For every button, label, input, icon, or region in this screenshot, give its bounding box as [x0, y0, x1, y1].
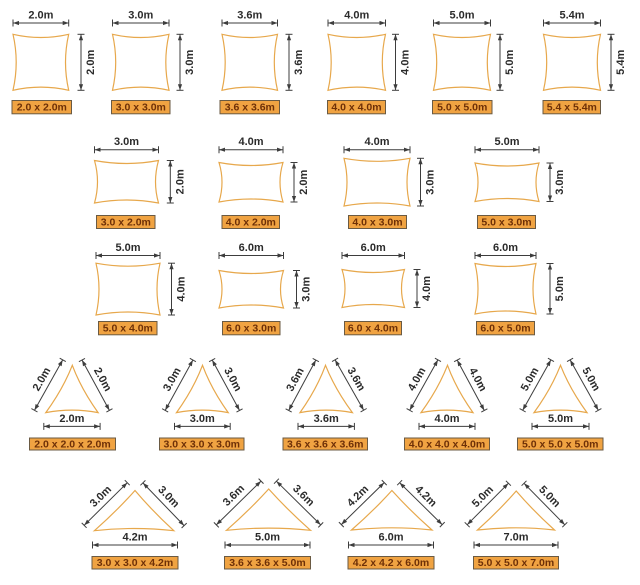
svg-text:2.0m: 2.0m — [31, 365, 54, 393]
svg-text:3.6 x 3.6 x 5.0m: 3.6 x 3.6 x 5.0m — [229, 557, 305, 569]
svg-text:4.2m: 4.2m — [345, 483, 371, 509]
svg-text:3.0m: 3.0m — [114, 136, 139, 148]
svg-text:5.0 x 5.0 x 5.0m: 5.0 x 5.0 x 5.0m — [522, 439, 598, 451]
svg-text:2.0m: 2.0m — [28, 10, 53, 22]
svg-text:3.6m: 3.6m — [237, 10, 262, 22]
svg-text:2.0m: 2.0m — [59, 413, 84, 425]
svg-text:6.0m: 6.0m — [361, 242, 386, 254]
svg-text:3.0m: 3.0m — [425, 169, 437, 194]
svg-text:5.0m: 5.0m — [470, 484, 496, 510]
svg-text:3.6m: 3.6m — [221, 482, 247, 508]
svg-text:4.0 x 2.0m: 4.0 x 2.0m — [226, 217, 276, 229]
svg-text:3.6m: 3.6m — [293, 50, 305, 75]
svg-text:5.4m: 5.4m — [559, 10, 584, 22]
svg-text:3.6 x 3.6 x 3.6m: 3.6 x 3.6 x 3.6m — [287, 439, 363, 451]
svg-text:3.0 x 3.0 x 3.0m: 3.0 x 3.0 x 3.0m — [164, 439, 240, 451]
svg-text:4.0 x 4.0 x 4.0m: 4.0 x 4.0 x 4.0m — [409, 439, 485, 451]
svg-text:5.0m: 5.0m — [554, 276, 566, 301]
svg-text:6.0m: 6.0m — [493, 242, 518, 254]
svg-text:5.0 x 5.0m: 5.0 x 5.0m — [437, 102, 487, 114]
svg-text:5.4m: 5.4m — [615, 50, 627, 75]
svg-text:4.2m: 4.2m — [122, 532, 147, 544]
svg-text:4.0m: 4.0m — [364, 136, 389, 148]
svg-text:3.0m: 3.0m — [184, 50, 196, 75]
svg-text:5.0 x 5.0 x 7.0m: 5.0 x 5.0 x 7.0m — [478, 557, 554, 569]
svg-text:2.0m: 2.0m — [91, 366, 114, 394]
svg-text:6.0m: 6.0m — [378, 532, 403, 544]
svg-text:5.0 x 4.0m: 5.0 x 4.0m — [103, 323, 153, 335]
svg-text:6.0 x 5.0m: 6.0 x 5.0m — [480, 323, 530, 335]
svg-text:4.0 x 4.0m: 4.0 x 4.0m — [331, 102, 381, 114]
svg-text:5.0 x 3.0m: 5.0 x 3.0m — [481, 217, 531, 229]
svg-text:4.0m: 4.0m — [406, 365, 429, 393]
svg-text:4.0 x 3.0m: 4.0 x 3.0m — [352, 217, 402, 229]
svg-text:5.0m: 5.0m — [494, 136, 519, 148]
svg-text:5.4 x 5.4m: 5.4 x 5.4m — [547, 102, 597, 114]
svg-text:3.0m: 3.0m — [155, 484, 181, 511]
svg-text:3.0 x 3.0m: 3.0 x 3.0m — [116, 102, 166, 114]
svg-text:5.0m: 5.0m — [579, 366, 602, 394]
svg-text:6.0 x 4.0m: 6.0 x 4.0m — [348, 323, 398, 335]
svg-text:3.0 x 3.0 x 4.2m: 3.0 x 3.0 x 4.2m — [97, 557, 173, 569]
svg-text:4.0m: 4.0m — [421, 276, 433, 301]
svg-text:4.0m: 4.0m — [400, 50, 412, 75]
svg-text:5.0m: 5.0m — [504, 50, 516, 75]
svg-text:3.6m: 3.6m — [284, 366, 307, 394]
svg-text:3.0m: 3.0m — [301, 276, 313, 301]
svg-text:6.0 x 3.0m: 6.0 x 3.0m — [226, 323, 276, 335]
svg-text:5.0m: 5.0m — [115, 242, 140, 254]
svg-text:4.0m: 4.0m — [344, 10, 369, 22]
svg-text:2.0m: 2.0m — [85, 50, 97, 75]
svg-text:3.0m: 3.0m — [221, 366, 244, 394]
svg-text:3.0 x 2.0m: 3.0 x 2.0m — [101, 217, 151, 229]
svg-text:3.0m: 3.0m — [190, 413, 215, 425]
svg-text:7.0m: 7.0m — [503, 532, 528, 544]
svg-text:5.0m: 5.0m — [548, 413, 573, 425]
svg-text:3.6m: 3.6m — [314, 413, 339, 425]
svg-text:5.0m: 5.0m — [449, 10, 474, 22]
svg-text:3.0m: 3.0m — [554, 169, 566, 194]
svg-text:3.0m: 3.0m — [161, 366, 184, 394]
svg-text:5.0m: 5.0m — [536, 484, 562, 510]
svg-text:4.0m: 4.0m — [176, 276, 188, 301]
svg-text:3.0m: 3.0m — [128, 10, 153, 22]
svg-text:2.0 x 2.0 x 2.0m: 2.0 x 2.0 x 2.0m — [34, 439, 110, 451]
svg-text:6.0m: 6.0m — [239, 242, 264, 254]
svg-text:4.0m: 4.0m — [466, 366, 489, 394]
svg-text:3.6m: 3.6m — [344, 365, 367, 393]
svg-text:4.0m: 4.0m — [434, 413, 459, 425]
svg-text:3.0m: 3.0m — [88, 483, 114, 509]
svg-text:4.2 x 4.2 x 6.0m: 4.2 x 4.2 x 6.0m — [353, 557, 429, 569]
svg-text:5.0m: 5.0m — [255, 532, 280, 544]
svg-text:4.2m: 4.2m — [412, 483, 438, 509]
svg-text:3.6 x 3.6m: 3.6 x 3.6m — [225, 102, 275, 114]
svg-text:3.6m: 3.6m — [290, 483, 316, 509]
svg-text:2.0m: 2.0m — [174, 169, 186, 194]
svg-text:4.0m: 4.0m — [238, 136, 263, 148]
svg-text:5.0m: 5.0m — [519, 365, 542, 393]
svg-text:2.0 x 2.0m: 2.0 x 2.0m — [17, 102, 67, 114]
svg-text:2.0m: 2.0m — [298, 169, 310, 194]
